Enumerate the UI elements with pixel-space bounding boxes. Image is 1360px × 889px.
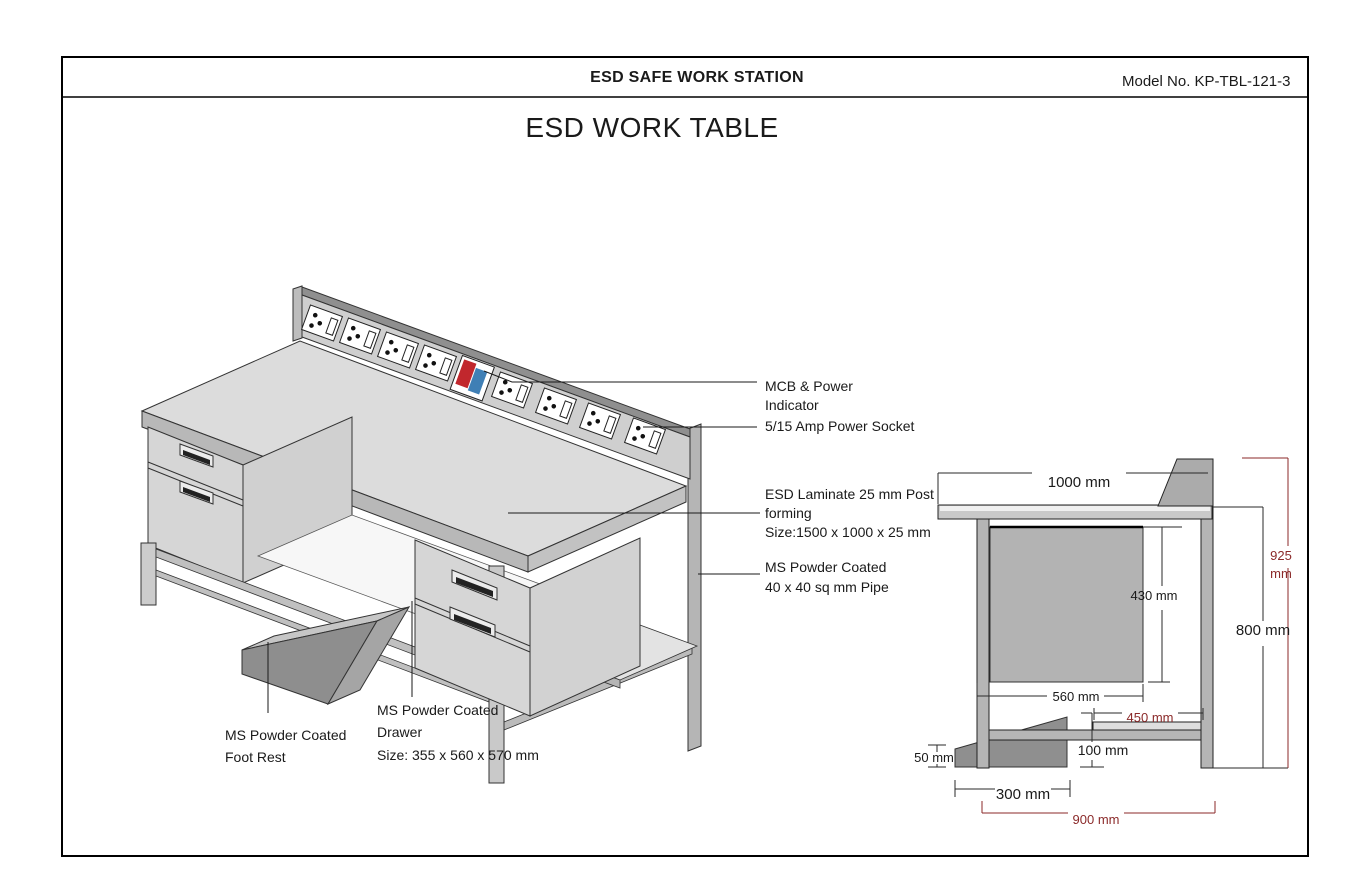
dim-footrest-height: 50 mm bbox=[914, 750, 954, 765]
esd-work-table-drawing: ESD SAFE WORK STATION Model No. KP-TBL-1… bbox=[0, 0, 1360, 884]
spec-sheet-page: ESD SAFE WORK STATION Model No. KP-TBL-1… bbox=[0, 0, 1360, 884]
footrest-side bbox=[955, 717, 1067, 767]
socket-label: 5/15 Amp Power Socket bbox=[765, 418, 915, 434]
bottom-rail-side bbox=[984, 730, 1203, 740]
right-leg-side bbox=[1201, 506, 1213, 768]
pipe-label-2: 40 x 40 sq mm Pipe bbox=[765, 579, 889, 595]
dim-overall-height-unit: mm bbox=[1270, 566, 1292, 581]
header: ESD SAFE WORK STATION Model No. KP-TBL-1… bbox=[590, 69, 1290, 90]
footrest-label: MS Powder Coated bbox=[225, 727, 346, 743]
station-title: ESD SAFE WORK STATION bbox=[590, 69, 804, 86]
dim-footrest-depth: 300 mm bbox=[996, 786, 1050, 803]
dim-base-depth: 900 mm bbox=[1073, 812, 1120, 827]
isometric-view: MCB & Power Indicator 5/15 Amp Power Soc… bbox=[141, 286, 934, 783]
left-leg-side bbox=[977, 519, 989, 768]
dim-drawer-height: 430 mm bbox=[1131, 588, 1178, 603]
drawer-label-3: Size: 355 x 560 x 570 mm bbox=[377, 747, 539, 763]
mcb-label-2: Indicator bbox=[765, 397, 819, 413]
dim-shelf-depth: 450 mm bbox=[1127, 710, 1174, 725]
dim-top-depth: 1000 mm bbox=[1048, 474, 1111, 491]
side-view: 1000 mm 925 mm 800 mm 430 mm 560 mm 450 … bbox=[914, 458, 1292, 827]
laminate-label-3: Size:1500 x 1000 x 25 mm bbox=[765, 524, 931, 540]
drawer-label: MS Powder Coated bbox=[377, 702, 498, 718]
laminate-label-2: forming bbox=[765, 505, 812, 521]
dim-drawer-depth: 560 mm bbox=[1053, 689, 1100, 704]
model-number: Model No. KP-TBL-121-3 bbox=[1122, 73, 1290, 90]
dim-shelf-height: 100 mm bbox=[1078, 742, 1129, 758]
dim-table-height: 800 mm bbox=[1236, 622, 1290, 639]
back-riser-side bbox=[1158, 459, 1213, 506]
mcb-label: MCB & Power bbox=[765, 378, 853, 394]
laminate-label: ESD Laminate 25 mm Post bbox=[765, 486, 934, 502]
drawer-label-2: Drawer bbox=[377, 724, 422, 740]
drawer-box-side bbox=[990, 527, 1143, 682]
dim-overall-height: 925 bbox=[1270, 548, 1292, 563]
footrest-label-2: Foot Rest bbox=[225, 749, 286, 765]
pipe-label: MS Powder Coated bbox=[765, 559, 886, 575]
foot-rest bbox=[242, 607, 409, 704]
page-title: ESD WORK TABLE bbox=[525, 112, 778, 143]
